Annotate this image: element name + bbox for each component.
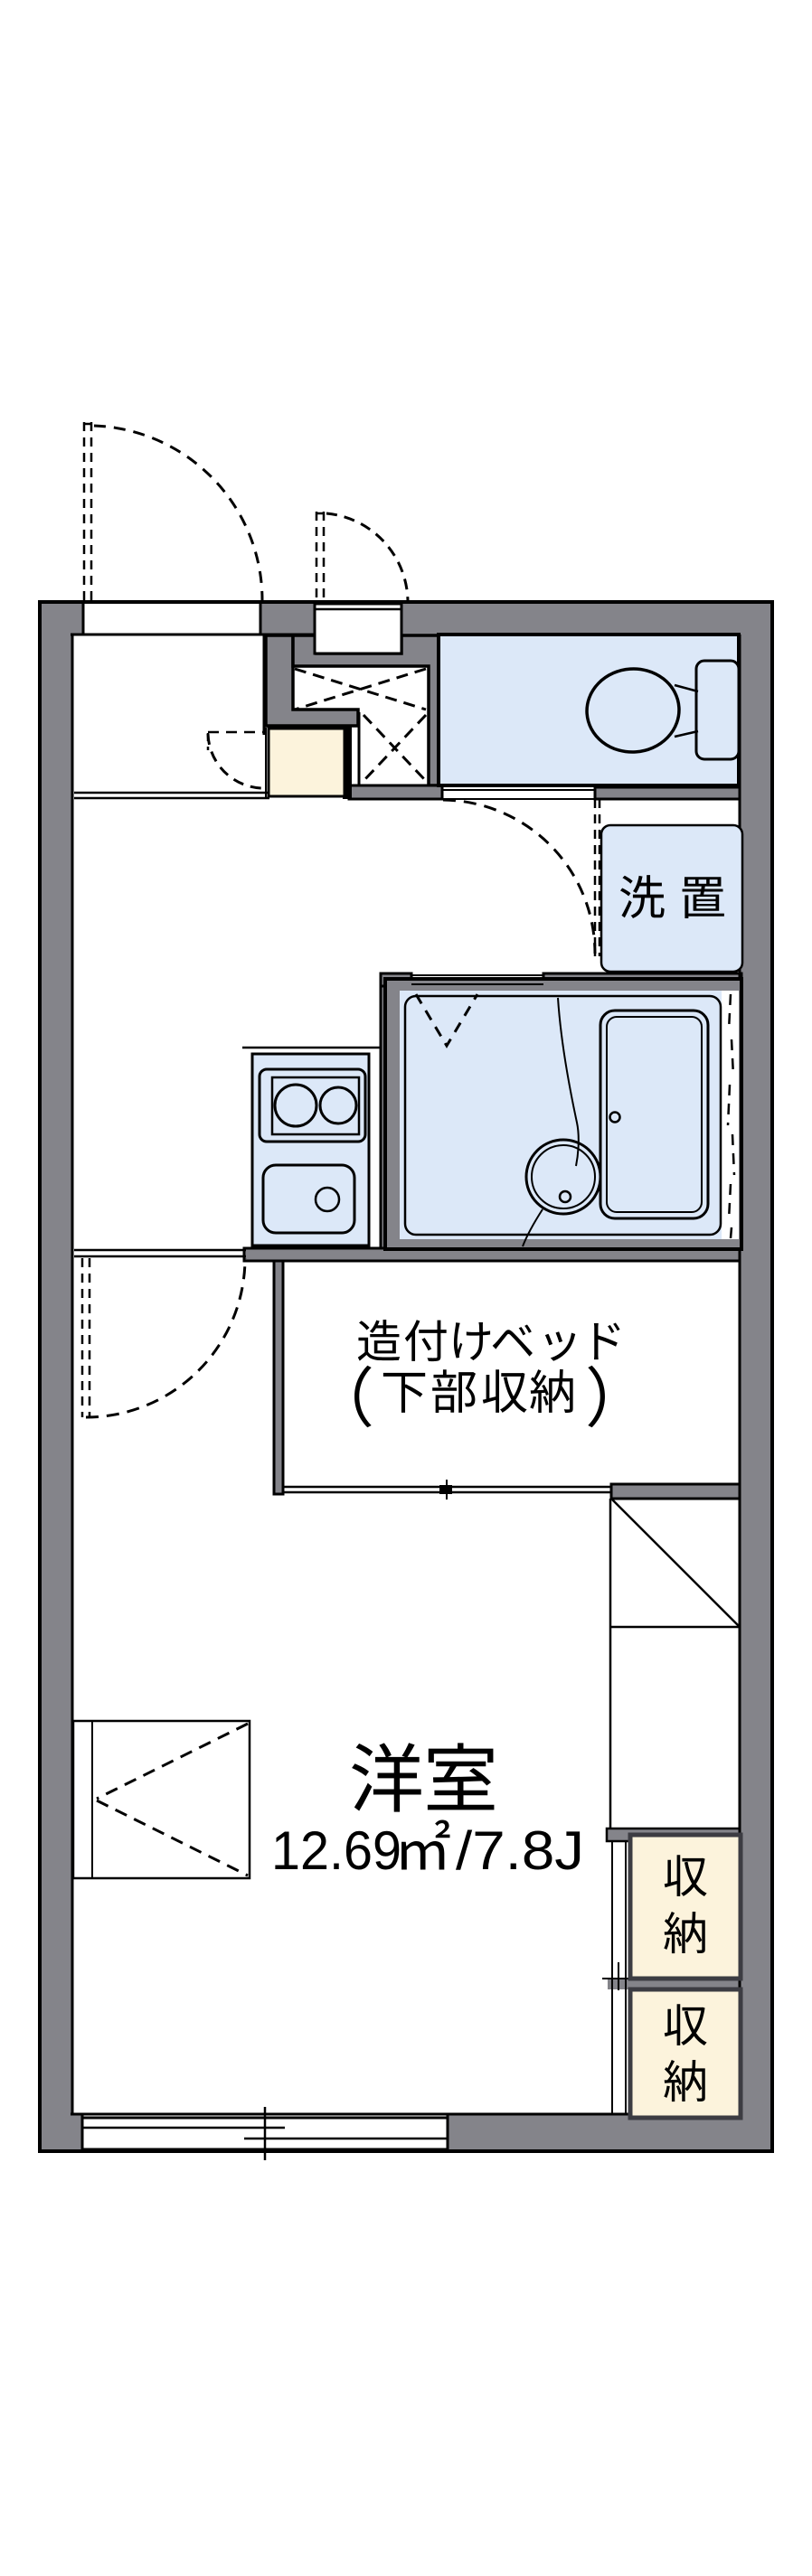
svg-text:12.69: 12.69 bbox=[271, 1820, 401, 1881]
svg-text:/7.8J: /7.8J bbox=[456, 1820, 584, 1881]
